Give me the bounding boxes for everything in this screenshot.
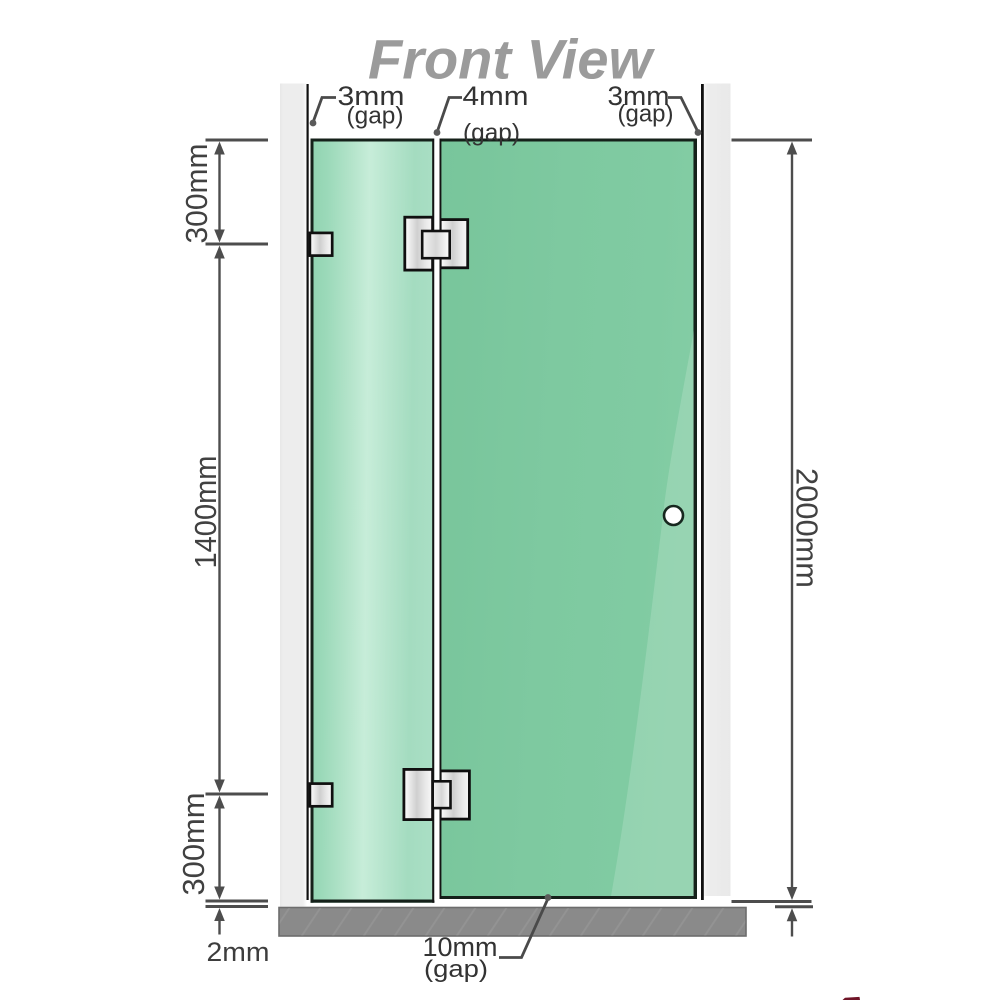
svg-text:4mm: 4mm (463, 81, 529, 111)
svg-text:(gap): (gap) (463, 120, 520, 147)
svg-text:(gap): (gap) (618, 101, 674, 128)
svg-text:300mm: 300mm (179, 144, 214, 244)
svg-text:2mm: 2mm (207, 937, 270, 967)
svg-text:1400mm: 1400mm (188, 456, 223, 569)
svg-text:300mm: 300mm (176, 793, 211, 896)
svg-text:2000mm: 2000mm (790, 468, 825, 588)
svg-text:(gap): (gap) (347, 103, 404, 130)
svg-text:(gap): (gap) (424, 956, 488, 983)
